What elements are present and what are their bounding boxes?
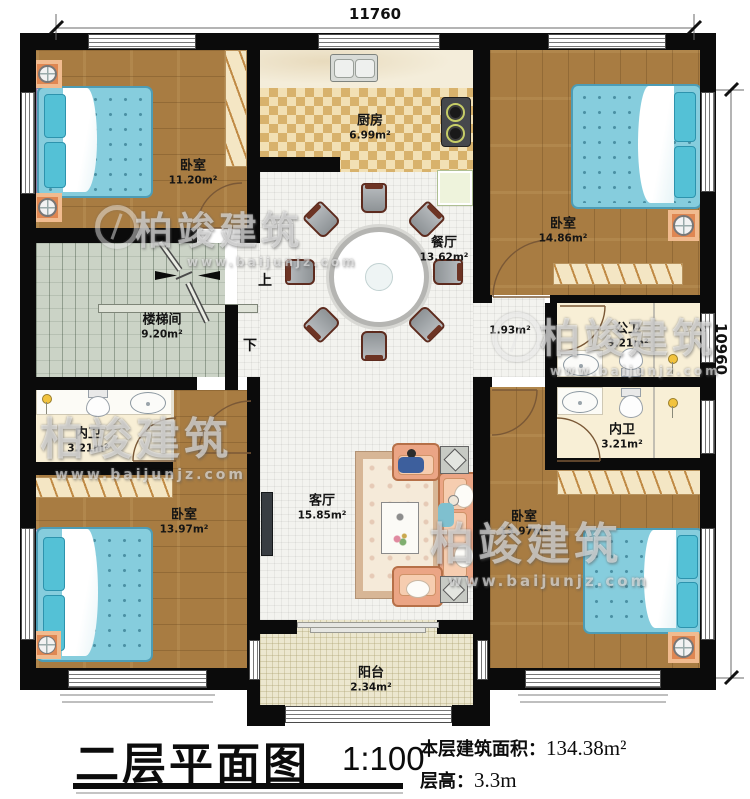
bathroom-sink — [130, 392, 166, 414]
room-name: 内卫 — [601, 422, 642, 438]
window-balcony-left — [249, 640, 260, 680]
bed-top-left — [37, 86, 153, 198]
coffee-table — [381, 502, 419, 554]
pillow — [674, 92, 696, 142]
room-name: 卧室 — [500, 509, 549, 525]
nightstand — [668, 632, 699, 663]
wall-bedroomTL-stair-b — [240, 228, 260, 243]
nightstand — [33, 60, 62, 88]
stairs-up-label: 上 — [258, 270, 272, 290]
floor-height-value: 3.3m — [474, 768, 517, 792]
room-label-dining: 餐厅 13.62m² — [420, 235, 469, 264]
wall-balcony-corner-left — [247, 705, 285, 727]
room-label-bedroom-top-left: 卧室 11.20m² — [169, 158, 218, 187]
room-label-public-bath: 公卫 3.21m² — [607, 321, 648, 350]
side-table — [440, 446, 469, 474]
room-name: 厨房 — [349, 113, 390, 129]
floor-area-value: 134.38m² — [546, 736, 626, 760]
room-name: 卧室 — [160, 507, 209, 523]
window-balcony-rail — [285, 706, 452, 723]
floorplan-page: 卧室 11.20m² 厨房 6.99m² 卧室 14.86m² 餐厅 13.62… — [0, 0, 750, 799]
room-label-bedroom-bottom-right: 卧室 13.97m² — [500, 509, 549, 538]
shower-icon — [668, 398, 678, 408]
floor-area-line: 本层建筑面积：134.38m² — [420, 735, 626, 761]
floor-height-line: 层高：3.3m — [420, 767, 517, 793]
throw-pillow — [454, 544, 474, 568]
wall-h4-a — [473, 377, 492, 387]
toilet-bowl — [619, 348, 643, 370]
wardrobe-bedroom-bottom-left — [33, 477, 173, 498]
room-area: 14.86m² — [539, 233, 588, 246]
watermark-logo-icon — [492, 312, 542, 362]
balcony-sliding-door-leaf — [310, 627, 426, 633]
tv — [261, 492, 273, 556]
bed-bottom-right — [583, 528, 704, 634]
nightstand — [668, 210, 699, 241]
shower-partition — [171, 390, 174, 462]
wall-bathR-bottom — [545, 458, 703, 470]
wall-bedroomTL-kitchen — [247, 33, 260, 243]
fridge — [437, 170, 473, 206]
shower-partition — [653, 303, 655, 377]
wall-hall-stub — [247, 377, 260, 390]
room-name: 公卫 — [607, 321, 648, 337]
lamp-icon — [38, 636, 56, 654]
bed-blanket — [638, 86, 674, 203]
room-area: 3.21m² — [601, 439, 642, 452]
title-underline — [73, 783, 403, 789]
sill-bottom-left-2 — [62, 701, 213, 703]
room-name: 卧室 — [169, 158, 218, 174]
wall-h3-b — [550, 295, 703, 303]
room-name: 阳台 — [350, 665, 391, 681]
pillow — [44, 94, 66, 138]
lamp-icon — [673, 215, 694, 236]
nightstand — [33, 631, 61, 659]
bed-blanket — [62, 529, 98, 656]
bathroom-sink — [562, 391, 598, 413]
burner-icon — [446, 124, 465, 143]
wall-living-right — [473, 387, 490, 620]
stairs-down-label: 下 — [243, 335, 257, 355]
wardrobe-bedroom-top-left — [225, 50, 247, 167]
room-label-stairwell: 楼梯间 9.20m² — [141, 312, 182, 341]
sill-bottom-left — [60, 694, 215, 696]
pillow — [44, 142, 66, 188]
lamp-icon — [38, 198, 57, 217]
bed-blanket — [644, 530, 676, 628]
wall-stair-bottom — [20, 377, 197, 390]
wall-bathL-bottom — [20, 462, 173, 475]
sink-basin — [355, 59, 375, 78]
room-label-bath-right: 内卫 3.21m² — [601, 422, 642, 451]
toilet-bowl — [86, 396, 110, 417]
room-name: 楼梯间 — [141, 312, 182, 328]
dimension-right: 10960 — [712, 318, 730, 380]
wall-h3-a — [473, 295, 492, 303]
dining-table-center — [365, 263, 393, 291]
wall-center-right-top — [473, 33, 490, 295]
sill-bottom-right-2 — [520, 701, 666, 703]
wall-pubbath-left — [545, 303, 557, 377]
room-area: 3.21m² — [67, 443, 108, 456]
wardrobe-bedroom-bottom-right — [557, 470, 703, 495]
floor-height-label: 层高： — [420, 771, 474, 792]
wall-balcony-corner-right — [452, 705, 490, 727]
window-balcony-right — [477, 640, 488, 680]
window-right-4 — [701, 528, 715, 640]
shower-icon — [42, 394, 52, 404]
armchair-bottom — [392, 566, 443, 607]
title-block: 二层平面图 1:100 本层建筑面积：134.38m² 层高：3.3m — [0, 726, 750, 799]
toilet — [619, 348, 643, 377]
shower-partition — [653, 387, 655, 458]
title-underline-shadow — [76, 792, 403, 794]
window-right-1 — [701, 92, 715, 192]
room-name: 内卫 — [67, 426, 108, 442]
side-table — [440, 576, 468, 603]
room-name: 客厅 — [298, 493, 347, 509]
room-area: 6.99m² — [349, 130, 390, 143]
room-label-living: 客厅 15.85m² — [298, 493, 347, 522]
room-label-kitchen: 厨房 6.99m² — [349, 113, 390, 142]
window-bottom-right — [525, 670, 661, 688]
room-area: 9.20m² — [141, 329, 182, 342]
sill-bottom-right — [518, 694, 668, 696]
room-label-bath-left: 内卫 3.21m² — [67, 426, 108, 455]
throw-pillow — [406, 580, 430, 598]
room-label-bedroom-bottom-left: 卧室 13.97m² — [160, 507, 209, 536]
shower-icon — [668, 354, 678, 364]
lamp-icon — [38, 65, 57, 83]
stove — [441, 97, 471, 147]
wall-bathR-left — [545, 387, 557, 467]
bed-top-right — [571, 84, 702, 209]
person-body — [398, 457, 424, 473]
pillow — [674, 146, 696, 198]
wall-kitchen-bottom — [247, 157, 340, 172]
wall-living-left — [247, 390, 260, 623]
room-name: 卧室 — [539, 216, 588, 232]
dimension-top: 11760 — [340, 5, 410, 23]
bed-blanket — [63, 88, 97, 192]
room-area: 15.85m² — [298, 510, 347, 523]
watermark-logo-icon — [95, 205, 139, 249]
wall-stair-right — [225, 305, 238, 390]
bathroom-sink — [563, 354, 599, 376]
room-area: 13.97m² — [500, 526, 549, 539]
pillow — [43, 537, 65, 591]
window-top-2 — [318, 34, 440, 49]
person-body — [438, 503, 454, 527]
toilet — [619, 388, 643, 417]
wall-living-south-left — [260, 620, 297, 634]
lamp-icon — [673, 637, 694, 658]
plan-scale: 1:100 — [342, 740, 425, 778]
room-area: 11.20m² — [169, 175, 218, 188]
room-area: 13.62m² — [420, 252, 469, 265]
pillow — [677, 535, 698, 579]
window-left-1 — [21, 92, 35, 194]
room-area: 3.21m² — [607, 338, 648, 351]
pillow — [677, 582, 698, 628]
wall-living-south-right — [437, 620, 473, 634]
dining-table — [329, 227, 429, 327]
window-right-3 — [701, 400, 715, 454]
wardrobe-bedroom-top-right — [553, 263, 683, 285]
window-top-1 — [88, 34, 196, 49]
room-name: 餐厅 — [420, 235, 469, 251]
sink-basin — [334, 59, 354, 78]
window-bottom-left — [68, 670, 207, 688]
wall-h4-b — [545, 377, 703, 387]
room-area: 2.34m² — [350, 682, 391, 695]
window-top-3 — [548, 34, 666, 49]
room-label-balcony: 阳台 2.34m² — [350, 665, 391, 694]
toilet — [86, 389, 110, 416]
toilet-bowl — [619, 395, 643, 418]
burner-icon — [446, 103, 465, 122]
nightstand — [33, 193, 62, 222]
room-area: 13.97m² — [160, 524, 209, 537]
floor-area-label: 本层建筑面积： — [420, 739, 546, 760]
kitchen-sink — [330, 54, 378, 82]
window-left-2 — [21, 528, 35, 640]
room-label-bedroom-top-right: 卧室 14.86m² — [539, 216, 588, 245]
